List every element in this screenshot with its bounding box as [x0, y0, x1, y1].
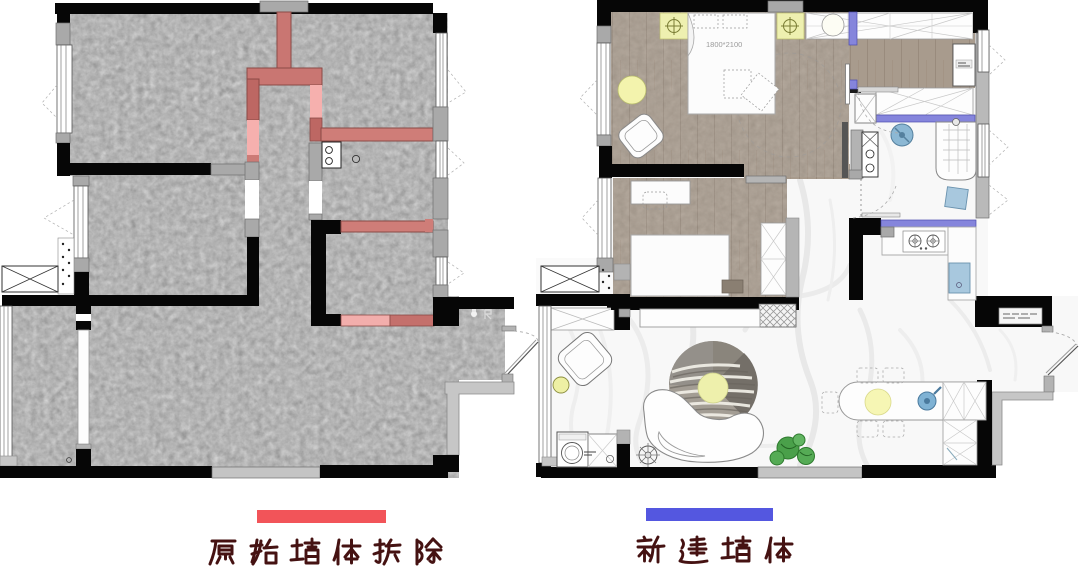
svg-text:1800*2100: 1800*2100	[706, 40, 742, 49]
